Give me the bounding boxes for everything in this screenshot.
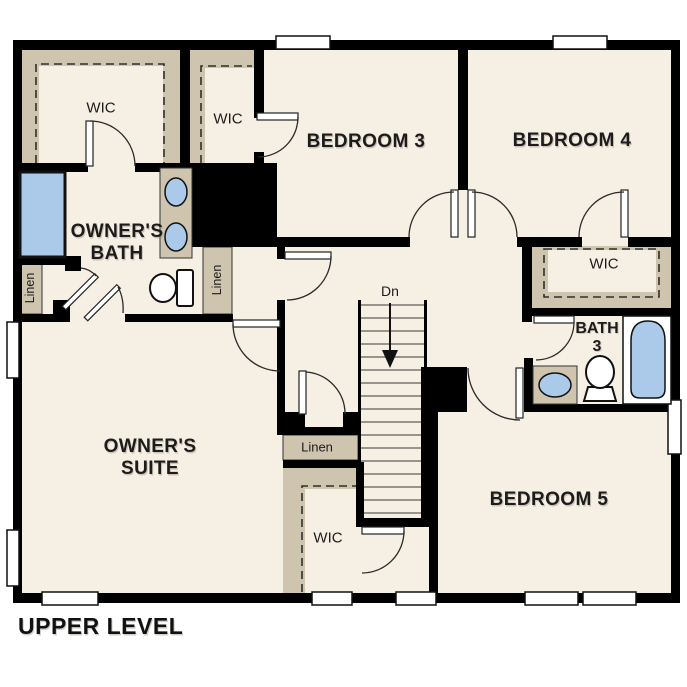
label-owners-bath-line1: OWNER'S	[71, 221, 164, 242]
label-bath3-line2: 3	[593, 338, 602, 355]
sink-fixture	[165, 223, 187, 251]
label-bedroom4: BEDROOM 4	[513, 130, 632, 152]
label-stairs-dn: Dn	[381, 283, 399, 299]
sink-fixture	[165, 178, 187, 206]
label-wic-hall: WIC	[213, 111, 242, 128]
label-owners-suite-line1: OWNER'S	[104, 436, 197, 457]
floor-plan: WIC WIC BEDROOM 3 BEDROOM 4 OWNER'S BATH…	[0, 0, 687, 687]
label-wic-bedroom5: WIC	[313, 530, 342, 547]
label-bedroom3: BEDROOM 3	[307, 131, 426, 153]
label-linen-left: Linen	[23, 273, 37, 304]
label-owners-suite-line2: SUITE	[121, 458, 179, 479]
plan-title: UPPER LEVEL	[18, 613, 183, 640]
label-owners-bath-line2: BATH	[91, 243, 144, 264]
tub-fixture	[623, 316, 671, 404]
label-wic-owner: WIC	[86, 100, 115, 117]
shower-fixture	[20, 172, 65, 257]
label-linen-center: Linen	[301, 440, 333, 455]
label-linen-right: Linen	[210, 265, 224, 296]
label-owners-suite: OWNER'S SUITE	[104, 436, 197, 480]
label-bedroom5: BEDROOM 5	[490, 489, 609, 511]
label-bath3: BATH 3	[575, 320, 618, 356]
sink-fixture	[539, 373, 571, 397]
label-wic-bedroom4: WIC	[589, 256, 618, 273]
label-owners-bath: OWNER'S BATH	[71, 221, 164, 265]
label-bath3-line1: BATH	[575, 320, 618, 337]
toilet-fixture	[584, 356, 616, 401]
